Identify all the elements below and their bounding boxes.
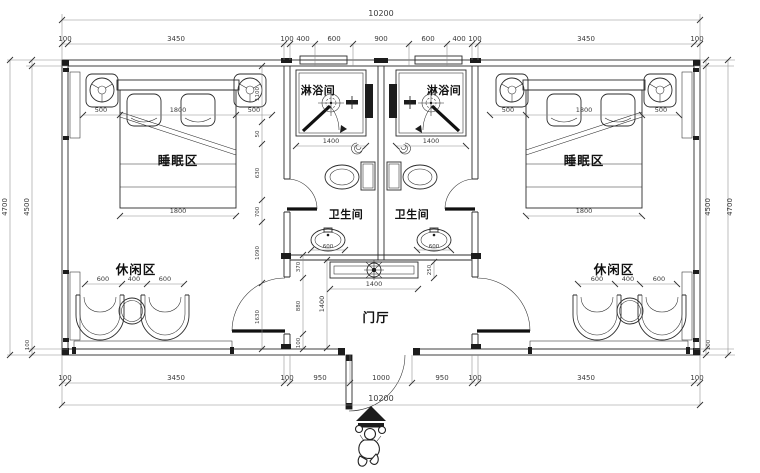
- dim-bottom-total: 10200: [368, 394, 393, 403]
- dim-bot-0: 100: [58, 374, 71, 382]
- shower-door-leaf: [303, 106, 330, 131]
- dim-leisure-right-2: 600: [653, 275, 665, 283]
- dim-bot-7: 3450: [577, 374, 595, 382]
- dim-top-2: 100: [280, 35, 293, 43]
- dim-bed-left-width: 1800: [170, 207, 187, 215]
- label-toilet-left: 卫生间: [329, 207, 364, 221]
- dim-top-7: 400: [452, 35, 465, 43]
- dim-right-inner-bottom: 100: [706, 339, 712, 350]
- dim-left-outer: 4700: [1, 198, 9, 216]
- ceiling-light-icon: [234, 74, 266, 107]
- partition-insulation: [365, 84, 373, 118]
- person-figure: [356, 426, 386, 467]
- dim-left-inner: 4500: [23, 198, 31, 216]
- dim-top-1: 3450: [167, 35, 185, 43]
- dim-leisure-left-2: 600: [159, 275, 171, 283]
- dim-bed-left-0: 500: [95, 106, 107, 114]
- dim-top-4: 600: [327, 35, 340, 43]
- dim-leisure-left-1: 400: [128, 275, 140, 283]
- label-sleeping-right: 睡眠区: [564, 153, 605, 168]
- ceiling-fan-icon: [364, 260, 384, 280]
- dim-shower-left: 1400: [323, 137, 340, 145]
- label-shower-left: 淋浴间: [301, 83, 336, 97]
- dim-top-total: 10200: [368, 9, 393, 18]
- label-sleeping-left: 睡眠区: [158, 153, 199, 168]
- toilet-icon: [325, 162, 375, 190]
- dim-right-inner: 4500: [704, 198, 712, 216]
- left-wall-window-lower: [70, 272, 80, 340]
- dim-top-5: 900: [374, 35, 387, 43]
- dim-counter-width: 1400: [366, 280, 383, 288]
- dim-top-9: 3450: [577, 35, 595, 43]
- entry-post: [413, 348, 420, 355]
- dim-chain-5: 1630: [255, 310, 261, 324]
- dim-foyer-height: 1400: [318, 296, 326, 313]
- dim-leisure-right-1: 400: [622, 275, 634, 283]
- dim-bot-2: 100: [280, 374, 293, 382]
- label-toilet-right: 卫生间: [395, 207, 430, 221]
- chair-icon: [141, 295, 189, 340]
- floor-plan-drawing: 睡眠区 睡眠区 淋浴间 淋浴间 卫生间 卫生间 休闲区 休闲区 门厅 10200…: [0, 0, 760, 473]
- bed-icon: [117, 80, 239, 208]
- dim-bot-3: 950: [313, 374, 326, 382]
- dim-bed-right-1: 1800: [576, 106, 593, 114]
- floor-plan-canvas: 睡眠区 睡眠区 淋浴间 淋浴间 卫生间 卫生间 休闲区 休闲区 门厅 10200…: [0, 0, 760, 473]
- dim-leisure-right-0: 600: [591, 275, 603, 283]
- label-foyer: 门厅: [362, 310, 389, 325]
- wall-posts: [62, 58, 381, 355]
- dim-chain-2: 630: [255, 167, 261, 178]
- right-suite-mirror: [381, 56, 700, 355]
- left-suite: [62, 56, 381, 355]
- dim-shower-right: 1400: [423, 137, 440, 145]
- dim-bot-5: 950: [435, 374, 448, 382]
- north-arrow-icon: [356, 406, 386, 428]
- dim-chain-1: 50: [255, 130, 261, 137]
- dim-bed-left-2: 500: [248, 106, 260, 114]
- shower-door-swing: [330, 106, 339, 130]
- dim-foyer-lower: 880: [296, 300, 302, 311]
- bathroom-foyer-wall: [290, 255, 381, 260]
- left-wall-window-upper: [70, 72, 80, 138]
- dim-wall-thickness: 100: [296, 337, 302, 348]
- dim-chain-3: 700: [255, 206, 261, 217]
- dim-left-inner-bottom: 100: [25, 339, 31, 350]
- dim-sink-right: 600: [429, 244, 440, 250]
- dim-chain-0: 1100: [255, 87, 261, 101]
- dim-bed-right-0: 500: [502, 106, 514, 114]
- dim-top-10: 100: [690, 35, 703, 43]
- dim-counter-offset: 370: [296, 261, 302, 272]
- ceiling-light-icon: [86, 74, 118, 107]
- dim-counter-depth: 250: [427, 264, 433, 275]
- bathroom-door-swing: [287, 179, 317, 209]
- dim-bed-right-width: 1800: [576, 207, 593, 215]
- dim-bot-6: 100: [468, 374, 481, 382]
- dim-bot-4: 1000: [372, 374, 390, 382]
- dim-chain-4: 1090: [255, 246, 261, 260]
- label-shower-right: 淋浴间: [427, 83, 462, 97]
- dim-top-6: 600: [421, 35, 434, 43]
- shower-door-arrow-icon: [340, 125, 347, 133]
- dim-bed-left-1: 1800: [170, 106, 187, 114]
- entry-opening: [345, 348, 413, 356]
- entry-post: [338, 348, 345, 355]
- dim-top-0: 100: [58, 35, 71, 43]
- center-partition-wall: [378, 66, 381, 260]
- dim-top-3: 400: [296, 35, 309, 43]
- dim-bed-right-2: 500: [655, 106, 667, 114]
- dim-bot-8: 100: [690, 374, 703, 382]
- paper-roll-icon: [352, 143, 363, 154]
- dim-right-outer: 4700: [726, 198, 734, 216]
- dim-top-8: 100: [468, 35, 481, 43]
- bottom-wall-window: [74, 341, 232, 349]
- dim-sink-left: 600: [323, 244, 334, 250]
- dim-leisure-left-0: 600: [97, 275, 109, 283]
- chair-icon: [76, 295, 124, 340]
- dim-bot-1: 3450: [167, 374, 185, 382]
